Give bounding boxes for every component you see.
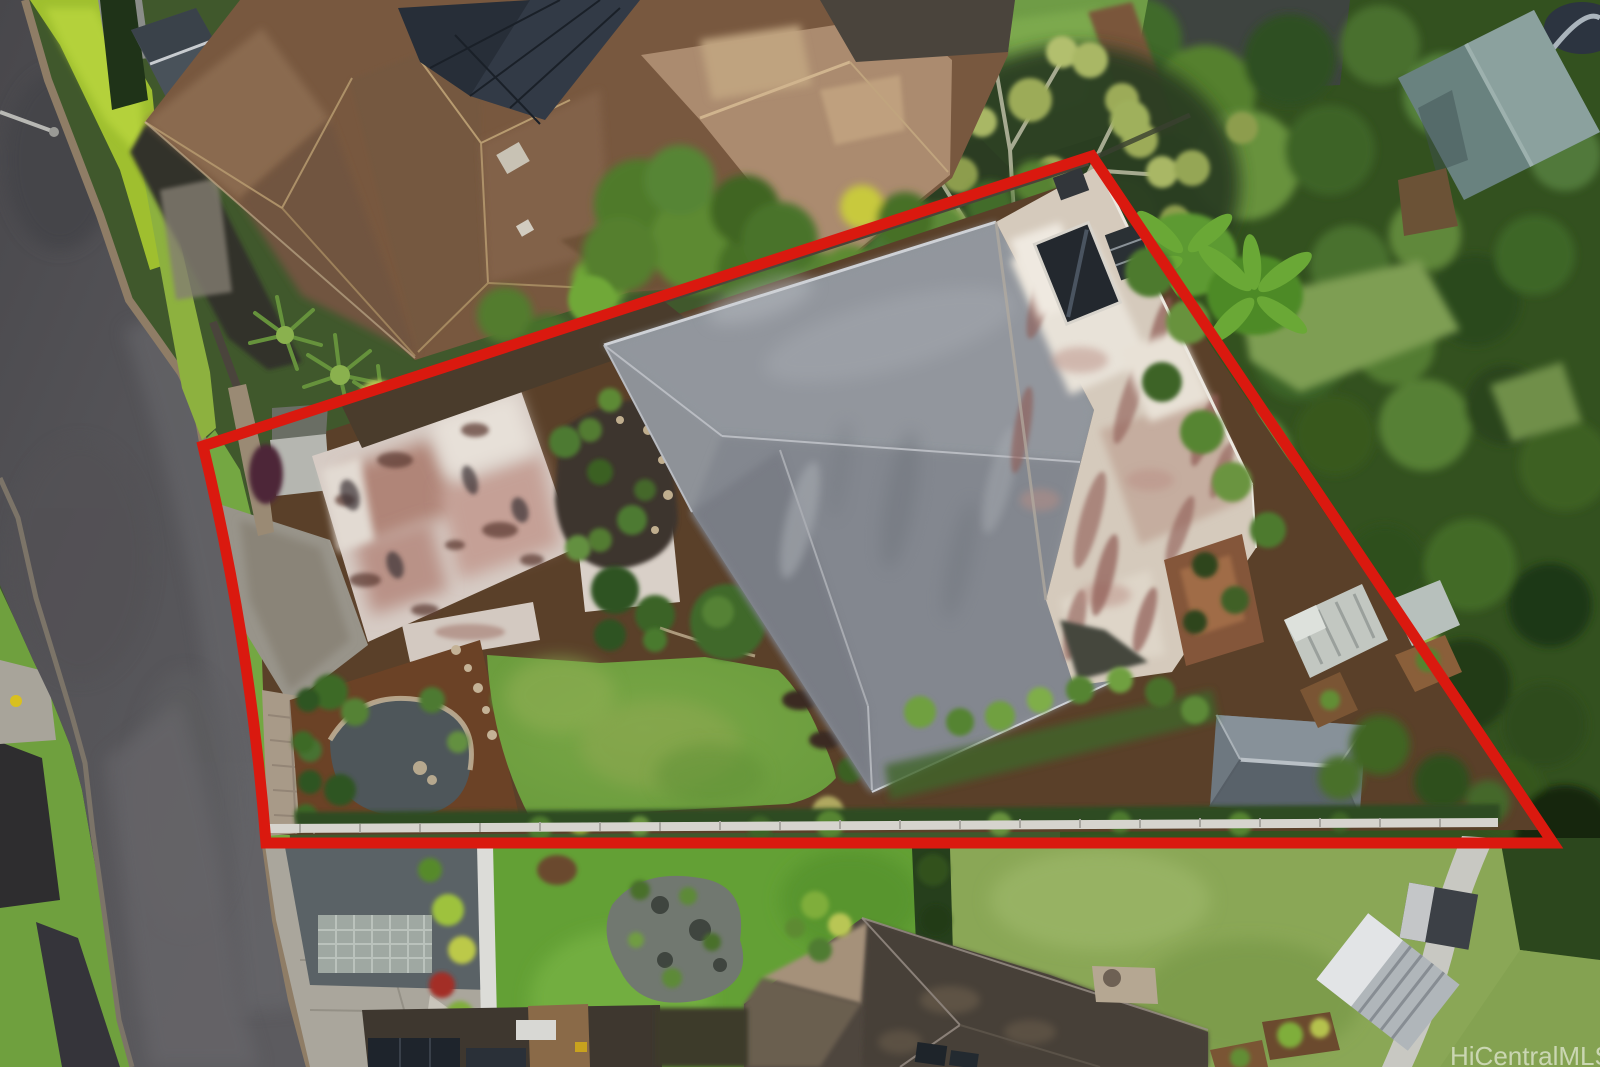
svg-text:HiCentralMLS: HiCentralMLS (1450, 1041, 1600, 1067)
